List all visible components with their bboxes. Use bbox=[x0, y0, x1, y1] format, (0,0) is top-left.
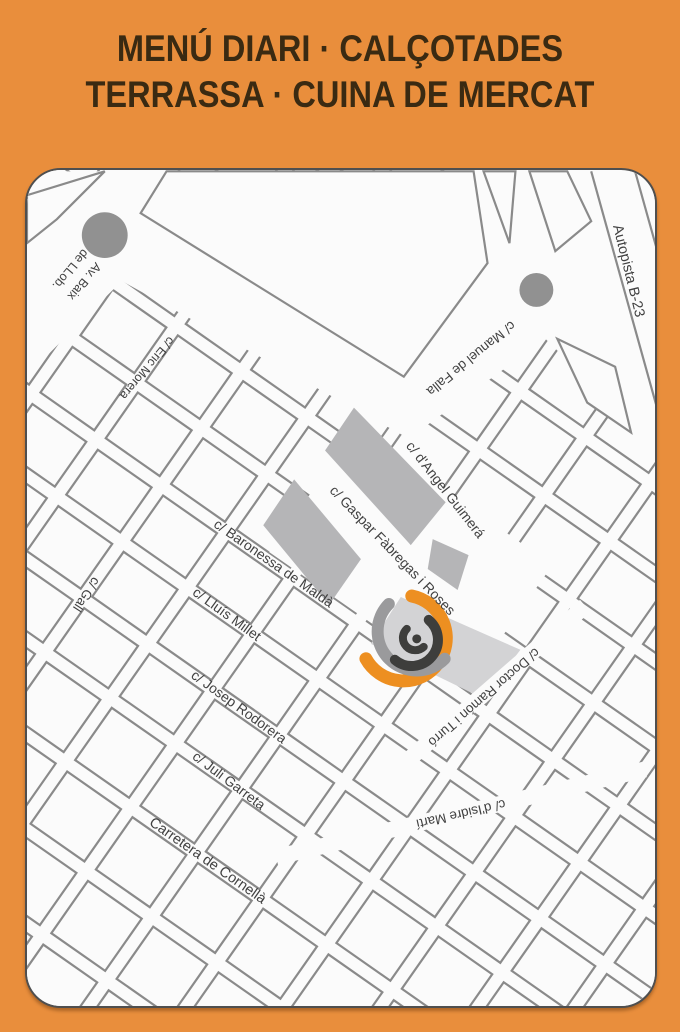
street-map: Av. Baixde LLob.c/ Eric Morerac/ Gallc/ … bbox=[27, 170, 655, 1006]
flyer-background: MENÚ DIARI · CALÇOTADES TERRASSA · CUINA… bbox=[0, 0, 680, 1032]
city-block bbox=[51, 881, 141, 971]
page-title: MENÚ DIARI · CALÇOTADES TERRASSA · CUINA… bbox=[0, 26, 680, 118]
map-card: Av. Baixde LLob.c/ Eric Morerac/ Gallc/ … bbox=[25, 168, 657, 1008]
title-line-1: MENÚ DIARI · CALÇOTADES bbox=[41, 26, 639, 72]
city-block bbox=[31, 772, 121, 862]
title-line-2: TERRASSA · CUINA DE MERCAT bbox=[41, 72, 639, 118]
roundabout-northwest-icon bbox=[82, 212, 128, 258]
city-block bbox=[227, 909, 317, 999]
city-block bbox=[75, 708, 166, 798]
roundabout-northeast-icon bbox=[519, 273, 553, 307]
city-block bbox=[336, 891, 427, 981]
